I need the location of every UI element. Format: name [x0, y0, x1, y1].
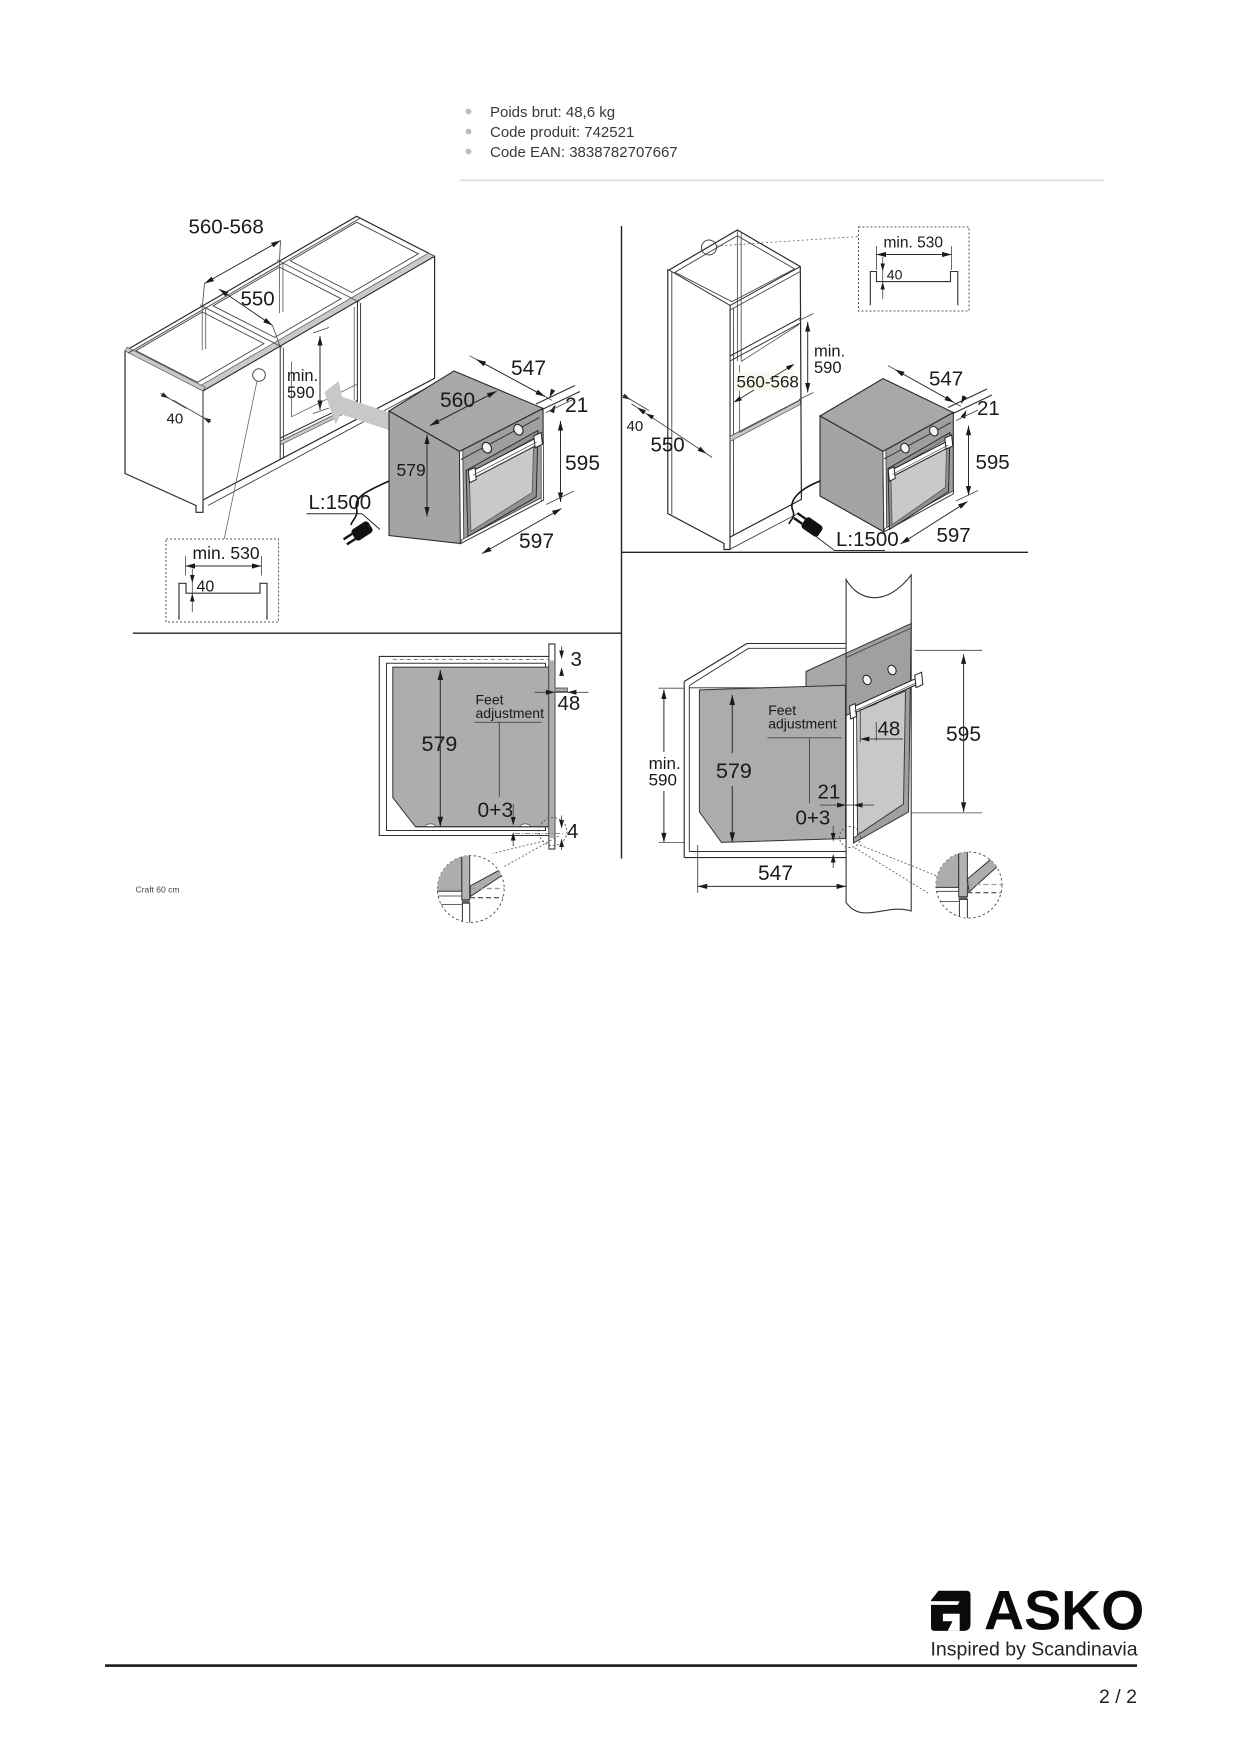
svg-text:597: 597 [937, 524, 971, 547]
svg-text:560: 560 [440, 389, 475, 412]
svg-text:adjustment: adjustment [768, 716, 837, 732]
svg-text:579: 579 [716, 759, 752, 783]
svg-text:550: 550 [651, 434, 685, 457]
svg-text:min. 530: min. 530 [193, 543, 260, 563]
svg-text:40: 40 [627, 418, 644, 435]
svg-text:adjustment: adjustment [476, 705, 545, 721]
svg-text:547: 547 [929, 368, 963, 391]
svg-text:547: 547 [511, 357, 546, 380]
svg-text:min.: min. [814, 343, 845, 361]
svg-text:Poids brut: 48,6 kg: Poids brut: 48,6 kg [490, 104, 615, 121]
svg-text:579: 579 [397, 460, 426, 480]
svg-text:Inspired by Scandinavia: Inspired by Scandinavia [931, 1639, 1138, 1661]
svg-text:590: 590 [287, 384, 315, 402]
svg-text:2 / 2: 2 / 2 [1099, 1686, 1137, 1708]
svg-text:ASKO: ASKO [984, 1580, 1144, 1642]
svg-text:595: 595 [976, 451, 1010, 474]
svg-text:21: 21 [818, 781, 841, 804]
svg-text:48: 48 [878, 718, 901, 741]
svg-text:L:1500: L:1500 [836, 528, 899, 551]
svg-text:3: 3 [571, 648, 582, 671]
svg-text:0+3: 0+3 [478, 799, 514, 822]
svg-text:min. 530: min. 530 [884, 235, 944, 252]
svg-text:L:1500: L:1500 [309, 491, 372, 514]
svg-text:590: 590 [649, 771, 677, 790]
svg-text:579: 579 [422, 732, 458, 756]
svg-text:0+3: 0+3 [796, 807, 831, 830]
svg-text:560-568: 560-568 [189, 216, 264, 239]
svg-text:4: 4 [567, 820, 578, 843]
svg-text:560-568: 560-568 [737, 373, 799, 392]
svg-text:40: 40 [167, 411, 184, 428]
svg-text:48: 48 [558, 692, 581, 715]
svg-text:min.: min. [287, 367, 318, 385]
svg-text:597: 597 [519, 530, 554, 553]
svg-text:547: 547 [758, 862, 793, 885]
svg-text:40: 40 [887, 267, 903, 283]
svg-text:Code EAN: 3838782707667: Code EAN: 3838782707667 [490, 144, 678, 161]
svg-text:Craft 60 cm: Craft 60 cm [136, 885, 180, 895]
svg-text:590: 590 [814, 359, 842, 377]
svg-text:595: 595 [565, 452, 600, 475]
svg-text:Code produit: 742521: Code produit: 742521 [490, 124, 634, 141]
